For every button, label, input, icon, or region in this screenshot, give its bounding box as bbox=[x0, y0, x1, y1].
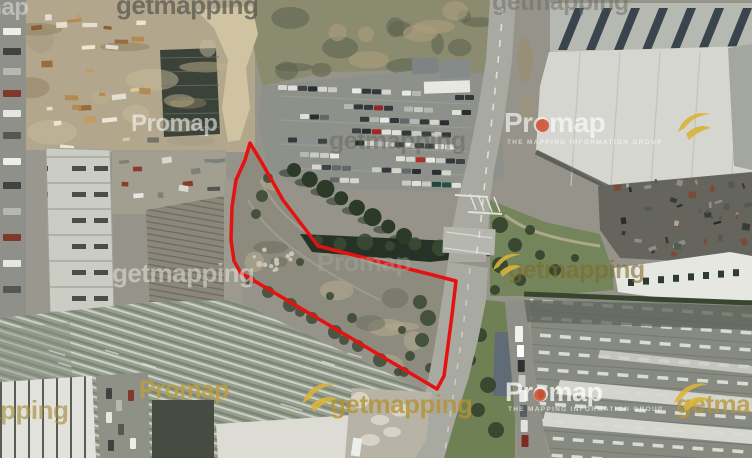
timber-stack bbox=[131, 37, 144, 42]
west-warehouse bbox=[46, 148, 114, 312]
truck bbox=[3, 208, 21, 215]
car bbox=[350, 178, 359, 183]
car bbox=[517, 345, 524, 357]
shrub bbox=[405, 351, 415, 361]
rubble bbox=[263, 262, 268, 267]
car bbox=[392, 168, 401, 173]
dark-patch bbox=[253, 241, 288, 254]
poplar-tree bbox=[316, 180, 334, 198]
timber-stack bbox=[54, 121, 62, 126]
shrub bbox=[413, 295, 427, 309]
car bbox=[362, 89, 371, 94]
shrub bbox=[398, 326, 406, 334]
timber-stack bbox=[45, 14, 52, 20]
scrap-clutter bbox=[614, 185, 622, 191]
car bbox=[370, 117, 379, 122]
truck bbox=[3, 286, 21, 293]
scrub-patch bbox=[349, 51, 389, 68]
scrub-patch bbox=[311, 63, 331, 77]
rubble bbox=[274, 267, 278, 271]
car bbox=[288, 85, 297, 90]
scrub-patch bbox=[358, 26, 374, 42]
timber-stack bbox=[136, 21, 145, 25]
rubble bbox=[286, 254, 290, 258]
watermark-promap: Promap bbox=[504, 107, 605, 139]
tree bbox=[525, 225, 535, 235]
car bbox=[442, 182, 451, 187]
window bbox=[673, 275, 679, 282]
timber-stack bbox=[147, 137, 159, 142]
rubble-patch bbox=[360, 434, 380, 446]
car bbox=[412, 91, 421, 96]
car bbox=[382, 168, 391, 173]
scrap-clutter bbox=[626, 183, 629, 187]
car bbox=[340, 178, 349, 183]
tree bbox=[471, 403, 485, 417]
scrub-patch bbox=[442, 1, 467, 20]
car bbox=[118, 424, 124, 435]
watermark-promap-tagline: THE MAPPING INFORMATION GROUP bbox=[507, 139, 663, 146]
rubble bbox=[288, 258, 292, 262]
timber-stack bbox=[115, 40, 129, 44]
scrap-clutter bbox=[645, 207, 652, 211]
car bbox=[318, 87, 327, 92]
car bbox=[364, 105, 373, 110]
car bbox=[298, 138, 307, 143]
dark-patch bbox=[382, 288, 409, 308]
car bbox=[436, 158, 445, 163]
shrub bbox=[251, 209, 261, 219]
window bbox=[733, 269, 739, 276]
car bbox=[412, 169, 421, 174]
car bbox=[465, 95, 474, 100]
shrub bbox=[256, 190, 268, 202]
car bbox=[422, 181, 431, 186]
watermark-getmapping: getmapping bbox=[329, 127, 466, 156]
car bbox=[406, 157, 415, 162]
scrap-clutter bbox=[674, 243, 682, 249]
car bbox=[394, 106, 403, 111]
ground-mottle bbox=[164, 94, 194, 107]
shrub bbox=[420, 310, 436, 326]
timber-stack bbox=[86, 69, 94, 72]
van bbox=[515, 326, 523, 342]
scrub-patch bbox=[386, 17, 404, 37]
car bbox=[420, 119, 429, 124]
truck bbox=[3, 90, 21, 97]
car bbox=[288, 137, 297, 142]
car bbox=[452, 110, 461, 115]
car bbox=[318, 139, 327, 144]
ground-mottle bbox=[27, 120, 77, 145]
scrub-patch bbox=[403, 25, 438, 42]
yard-clutter bbox=[133, 193, 144, 198]
window bbox=[688, 273, 694, 280]
yard-clutter bbox=[122, 182, 129, 187]
shrub bbox=[296, 258, 304, 266]
aerial-map-view[interactable]: Promap getmapping getmapping Promap getm… bbox=[0, 0, 752, 458]
shrub bbox=[326, 292, 334, 300]
scrap-clutter bbox=[709, 202, 712, 208]
car bbox=[518, 360, 525, 372]
car bbox=[116, 400, 122, 411]
car bbox=[424, 108, 433, 113]
car bbox=[108, 440, 114, 451]
car bbox=[416, 157, 425, 162]
car bbox=[402, 91, 411, 96]
truck bbox=[3, 68, 21, 75]
watermark-promap: Promap bbox=[317, 247, 411, 278]
yard-clutter bbox=[207, 187, 220, 191]
truck bbox=[3, 260, 21, 267]
poplar-tree bbox=[349, 200, 365, 216]
car bbox=[130, 438, 136, 449]
scrap-clutter bbox=[621, 231, 625, 236]
car bbox=[106, 388, 112, 399]
car bbox=[360, 117, 369, 122]
car bbox=[432, 182, 441, 187]
car bbox=[452, 183, 461, 188]
car bbox=[300, 114, 309, 119]
watermark-promap-partial: Promap bbox=[0, 0, 28, 22]
shrub bbox=[415, 333, 429, 347]
scrap-clutter bbox=[728, 181, 735, 188]
car bbox=[522, 435, 529, 447]
car bbox=[106, 412, 112, 423]
rubble bbox=[256, 261, 262, 267]
car bbox=[455, 95, 464, 100]
car bbox=[310, 152, 319, 157]
car bbox=[426, 158, 435, 163]
tree bbox=[488, 422, 504, 438]
truck bbox=[3, 132, 21, 139]
poplar-tree bbox=[381, 220, 395, 234]
rubble-patch bbox=[383, 427, 401, 437]
car bbox=[352, 88, 361, 93]
car bbox=[400, 118, 409, 123]
car bbox=[456, 159, 465, 164]
car bbox=[344, 104, 353, 109]
car bbox=[310, 114, 319, 119]
car bbox=[278, 85, 287, 90]
timber-stack bbox=[69, 97, 79, 100]
truck bbox=[3, 110, 21, 117]
window bbox=[703, 272, 709, 279]
car bbox=[402, 181, 411, 186]
truck bbox=[3, 234, 21, 241]
car bbox=[432, 170, 441, 175]
getmapping-swoosh-icon bbox=[668, 376, 710, 423]
car bbox=[404, 107, 413, 112]
window bbox=[658, 276, 664, 283]
scrub-patch bbox=[448, 39, 472, 56]
scrub-patch bbox=[271, 7, 309, 29]
car bbox=[128, 390, 134, 401]
scrap-yard bbox=[598, 172, 752, 262]
car bbox=[330, 177, 339, 182]
promap-logo-dot bbox=[536, 119, 549, 132]
shrub bbox=[347, 313, 357, 323]
south-east-warehouse bbox=[524, 294, 752, 458]
scrap-clutter bbox=[719, 216, 722, 220]
promap-logo-dot bbox=[534, 389, 546, 401]
timber-stack bbox=[56, 22, 67, 28]
car bbox=[440, 120, 449, 125]
truck bbox=[3, 182, 21, 189]
car bbox=[332, 165, 341, 170]
truck bbox=[3, 48, 21, 55]
rubble bbox=[269, 264, 273, 268]
watermark-promap: Promap bbox=[139, 376, 229, 405]
window bbox=[718, 271, 724, 278]
car bbox=[298, 86, 307, 91]
yard-clutter bbox=[158, 192, 164, 198]
car bbox=[410, 119, 419, 124]
poplar-tree bbox=[396, 228, 412, 244]
truck bbox=[3, 158, 21, 165]
timber-stack bbox=[123, 137, 130, 141]
timber-stack bbox=[76, 15, 82, 18]
watermark-promap: Promap bbox=[131, 110, 217, 138]
timber-stack bbox=[139, 88, 151, 95]
scrap-clutter bbox=[620, 217, 626, 224]
car bbox=[354, 104, 363, 109]
getmapping-swoosh-icon bbox=[488, 248, 522, 287]
watermark-getmapping: getmapping bbox=[112, 258, 254, 289]
car bbox=[442, 170, 451, 175]
poplar-tree bbox=[302, 171, 318, 187]
rubble bbox=[262, 248, 267, 253]
scrap-clutter bbox=[706, 209, 710, 213]
car bbox=[384, 106, 393, 111]
tree bbox=[480, 377, 496, 393]
watermark-getmapping: getmapping bbox=[116, 0, 258, 21]
promap-swoosh-icon bbox=[672, 106, 712, 151]
dark-patch bbox=[355, 315, 385, 331]
car bbox=[414, 107, 423, 112]
car bbox=[300, 152, 309, 157]
car bbox=[462, 110, 471, 115]
car bbox=[308, 138, 317, 143]
truck bbox=[3, 28, 21, 35]
timber-stack bbox=[72, 105, 81, 111]
car bbox=[382, 90, 391, 95]
rubble bbox=[274, 261, 279, 266]
poplar-tree bbox=[287, 163, 301, 177]
car bbox=[374, 105, 383, 110]
timber-stack bbox=[41, 61, 52, 68]
car bbox=[521, 420, 528, 432]
car bbox=[380, 118, 389, 123]
car bbox=[342, 166, 351, 171]
car bbox=[328, 87, 337, 92]
car bbox=[392, 90, 401, 95]
scrap-clutter bbox=[710, 185, 714, 192]
watermark-getmapping-partial: getmapping bbox=[0, 395, 68, 426]
poplar-tree bbox=[364, 208, 382, 226]
car bbox=[396, 156, 405, 161]
scrub-patch bbox=[329, 24, 347, 41]
car bbox=[422, 169, 431, 174]
timber-stack bbox=[99, 93, 106, 97]
timber-stack bbox=[83, 116, 96, 123]
poplar-tree bbox=[334, 191, 348, 205]
watermark-promap: Promap bbox=[505, 377, 603, 408]
car bbox=[320, 115, 329, 120]
yard-clutter bbox=[133, 167, 142, 172]
car bbox=[446, 159, 455, 164]
car bbox=[320, 153, 329, 158]
car bbox=[372, 167, 381, 172]
scrub-patch bbox=[275, 63, 313, 72]
car bbox=[372, 89, 381, 94]
watermark-getmapping: getmapping bbox=[508, 256, 645, 285]
car bbox=[322, 165, 331, 170]
car bbox=[312, 165, 321, 170]
car bbox=[402, 169, 411, 174]
car bbox=[308, 86, 317, 91]
car bbox=[390, 118, 399, 123]
watermark-getmapping: getmapping bbox=[492, 0, 629, 17]
getmapping-swoosh-icon bbox=[296, 376, 338, 423]
car bbox=[430, 120, 439, 125]
ground-mottle bbox=[199, 39, 216, 57]
scrap-clutter bbox=[718, 234, 723, 241]
timber-stack bbox=[82, 23, 97, 27]
watermark-getmapping: getmapping bbox=[330, 389, 472, 420]
car bbox=[412, 181, 421, 186]
watermark-promap-tagline: THE MAPPING INFORMATION GROUP bbox=[508, 406, 664, 413]
scrap-clutter bbox=[689, 191, 697, 198]
timber-stack bbox=[47, 107, 53, 111]
